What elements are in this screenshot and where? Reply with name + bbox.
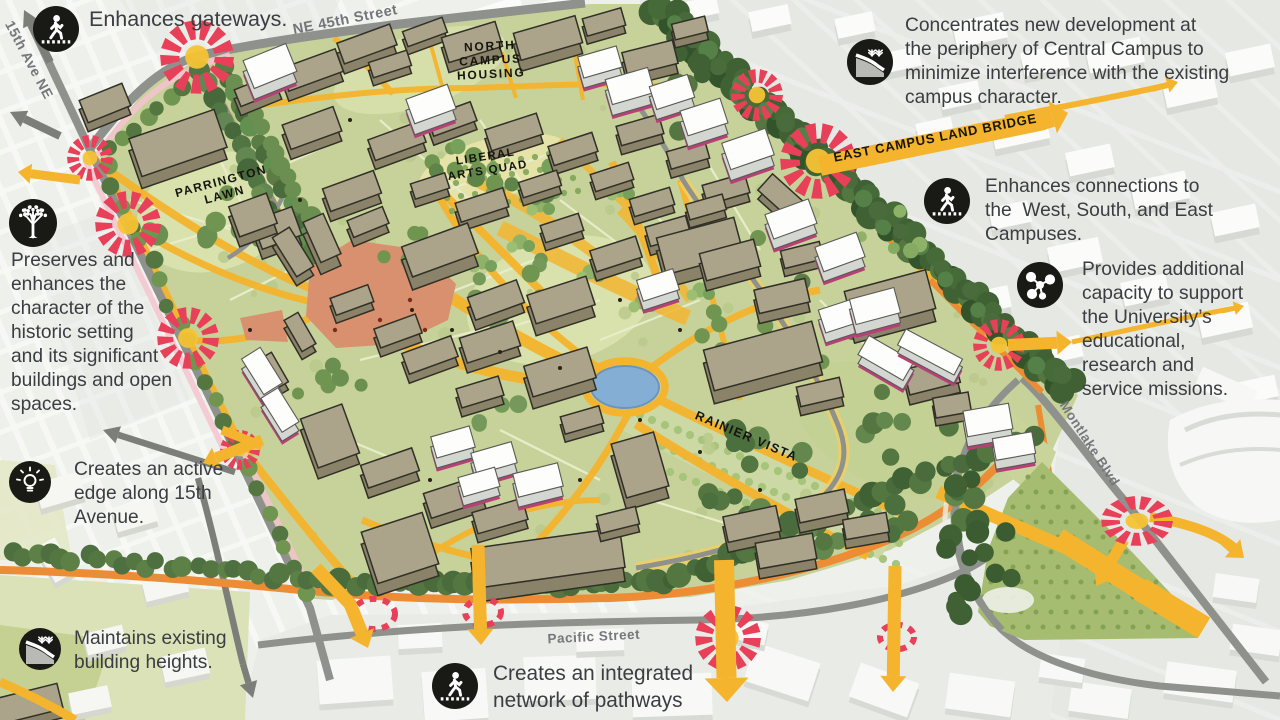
- svg-text:NORTHCAMPUSHOUSING: NORTHCAMPUSHOUSING: [455, 37, 526, 83]
- svg-text:Enhances gateways.: Enhances gateways.: [89, 7, 287, 31]
